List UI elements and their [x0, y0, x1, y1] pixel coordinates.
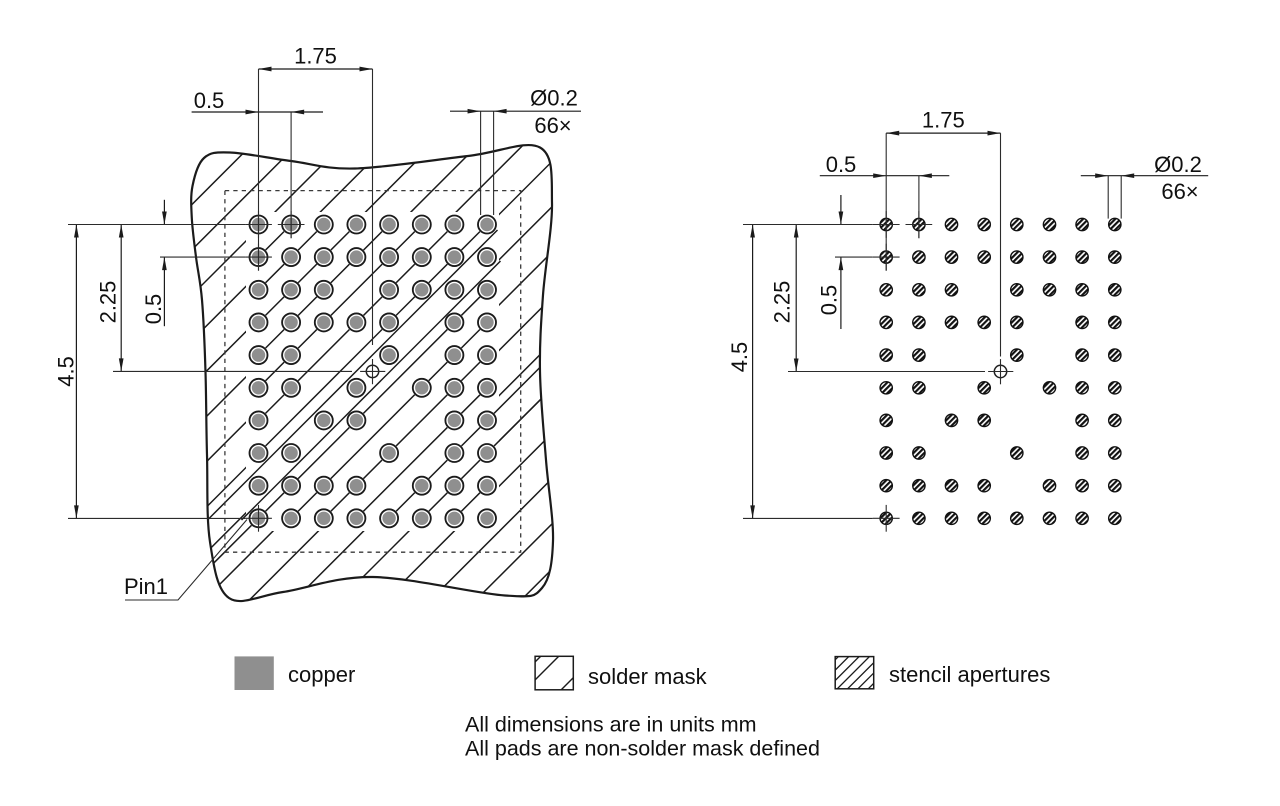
svg-text:0.5: 0.5 — [194, 88, 225, 113]
svg-text:All pads are non-solder mask d: All pads are non-solder mask defined — [465, 737, 820, 761]
svg-text:copper: copper — [288, 662, 355, 687]
svg-text:All dimensions are in units mm: All dimensions are in units mm — [465, 713, 757, 737]
svg-text:1.75: 1.75 — [922, 108, 965, 133]
svg-text:solder mask: solder mask — [588, 664, 708, 689]
svg-text:0.5: 0.5 — [826, 152, 857, 177]
svg-text:1.75: 1.75 — [294, 44, 337, 69]
svg-text:66×: 66× — [1161, 179, 1198, 204]
svg-text:0.5: 0.5 — [816, 285, 841, 316]
svg-text:2.25: 2.25 — [770, 281, 795, 324]
svg-text:66×: 66× — [534, 113, 571, 138]
svg-text:Ø0.2: Ø0.2 — [1154, 152, 1202, 177]
svg-text:Ø0.2: Ø0.2 — [530, 86, 578, 111]
svg-text:stencil apertures: stencil apertures — [889, 662, 1050, 687]
svg-text:4.5: 4.5 — [727, 342, 752, 373]
svg-text:Pin1: Pin1 — [124, 574, 168, 599]
svg-text:2.25: 2.25 — [96, 281, 121, 324]
svg-text:4.5: 4.5 — [53, 356, 78, 387]
svg-text:0.5: 0.5 — [141, 294, 166, 325]
